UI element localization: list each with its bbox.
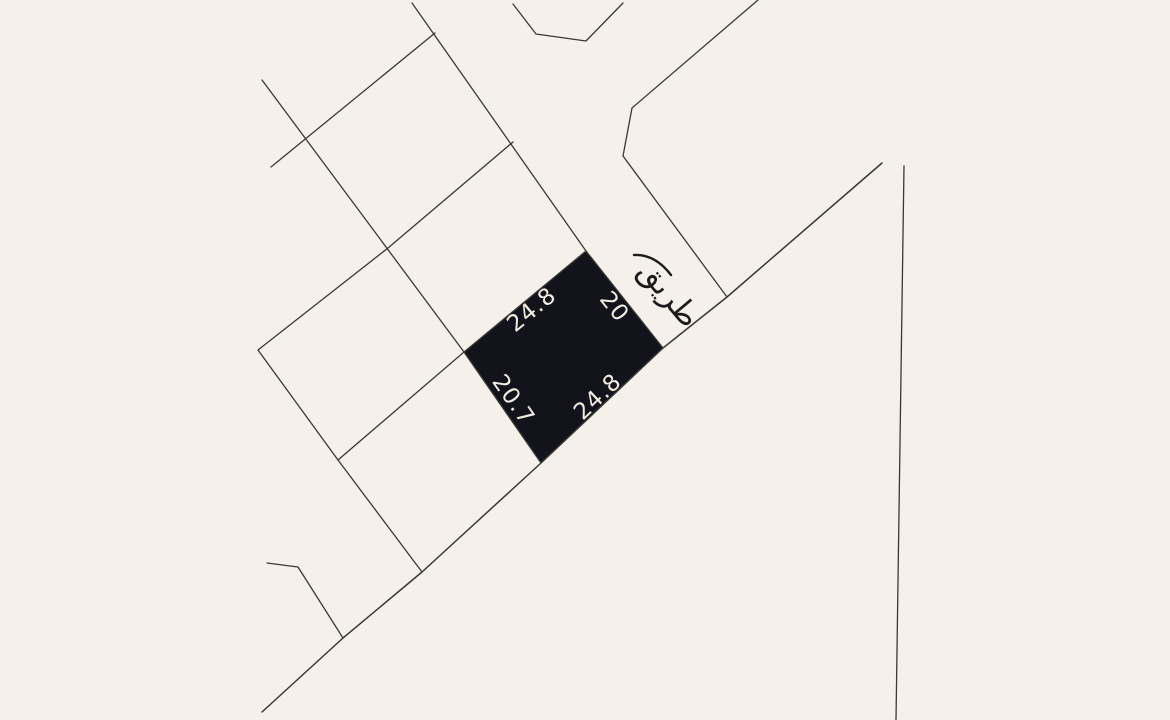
map-viewport[interactable]: 24.8 20 20.7 24.8 طريق bbox=[0, 0, 1170, 720]
cadastral-map-canvas[interactable]: 24.8 20 20.7 24.8 طريق bbox=[0, 0, 1170, 720]
